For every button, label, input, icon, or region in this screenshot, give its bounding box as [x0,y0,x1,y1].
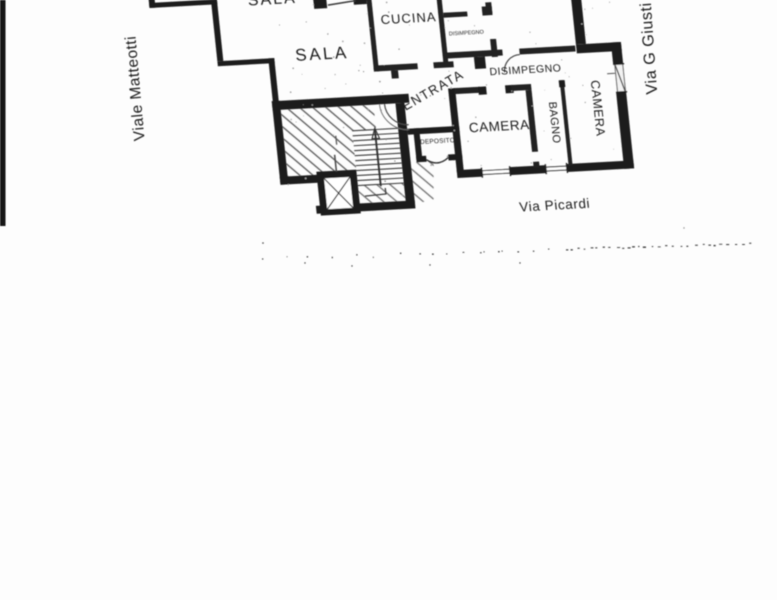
svg-text:SALA: SALA [294,43,349,65]
svg-text:CUCINA: CUCINA [380,9,437,27]
